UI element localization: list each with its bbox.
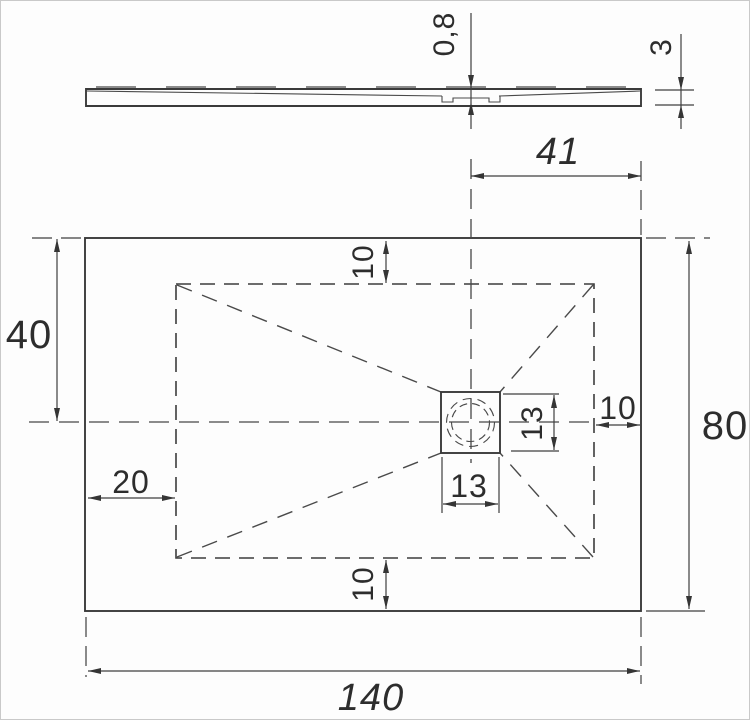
dim-border-bottom: 10 (347, 560, 389, 609)
dim-10-right-label: 10 (599, 390, 637, 426)
slope-line-left (87, 91, 442, 96)
dim-slope-depth: 0,8 (428, 12, 474, 129)
dim-10-top-label: 10 (347, 244, 380, 279)
arrowhead-right-icon (627, 668, 640, 674)
arrowhead-down-icon (678, 77, 684, 90)
arrowhead-left-icon (471, 173, 484, 179)
dim-overall-width: 140 (86, 617, 641, 719)
slope-diagonal-top-left (177, 285, 441, 392)
arrowhead-down-icon (686, 596, 692, 609)
arrowhead-up-icon (551, 395, 557, 408)
arrowhead-up-icon (383, 241, 389, 254)
dim-140-label: 140 (338, 677, 404, 719)
dim-thickness-label: 3 (645, 38, 678, 56)
slope-diagonal-bottom-right (500, 453, 593, 557)
arrowhead-right-icon (628, 173, 641, 179)
shower-tray-drawing: 0,8 3 (1, 1, 750, 721)
arrowhead-up-icon (54, 239, 60, 252)
dim-drain-width: 13 (442, 457, 499, 513)
dim-border-left: 20 (88, 464, 175, 501)
dim-13-width-label: 13 (450, 468, 488, 504)
arrowhead-down-icon (383, 596, 389, 609)
dim-slope-depth-label: 0,8 (428, 12, 461, 57)
dim-20-label: 20 (112, 464, 150, 500)
arrowhead-down-icon (383, 270, 389, 283)
dim-drain-to-right: 41 (471, 131, 641, 235)
arrowhead-down-icon (468, 75, 474, 88)
dim-10-bottom-label: 10 (347, 566, 380, 601)
dim-thickness: 3 (645, 34, 694, 129)
dim-80-label: 80 (702, 404, 749, 448)
slope-line-right (499, 91, 640, 96)
arrowhead-right-icon (162, 495, 175, 501)
plan-view: 41 40 80 140 (6, 131, 749, 719)
arrowhead-up-icon (686, 241, 692, 254)
arrowhead-up-icon (678, 105, 684, 118)
arrowhead-left-icon (88, 668, 101, 674)
dim-border-top: 10 (347, 241, 389, 283)
arrowhead-down-icon (551, 437, 557, 450)
dim-40-label: 40 (6, 313, 53, 357)
arrowhead-up-icon (468, 102, 474, 115)
slope-diagonal-bottom-left (177, 453, 441, 557)
dim-border-right: 10 (596, 390, 640, 428)
tray-outline (85, 238, 641, 611)
dim-41-label: 41 (536, 131, 580, 173)
arrowhead-left-icon (88, 495, 101, 501)
dim-overall-depth: 80 (646, 238, 748, 611)
arrowhead-up-icon (383, 560, 389, 573)
tray-profile-outline (86, 89, 641, 106)
arrowhead-down-icon (54, 408, 60, 421)
slope-diagonal-top-right (500, 285, 593, 392)
dim-13-depth-label: 13 (516, 405, 549, 440)
side-view-profile: 0,8 3 (86, 12, 694, 129)
dim-centerline-from-top: 40 (6, 238, 85, 421)
technical-drawing-sheet: 0,8 3 (0, 0, 750, 720)
